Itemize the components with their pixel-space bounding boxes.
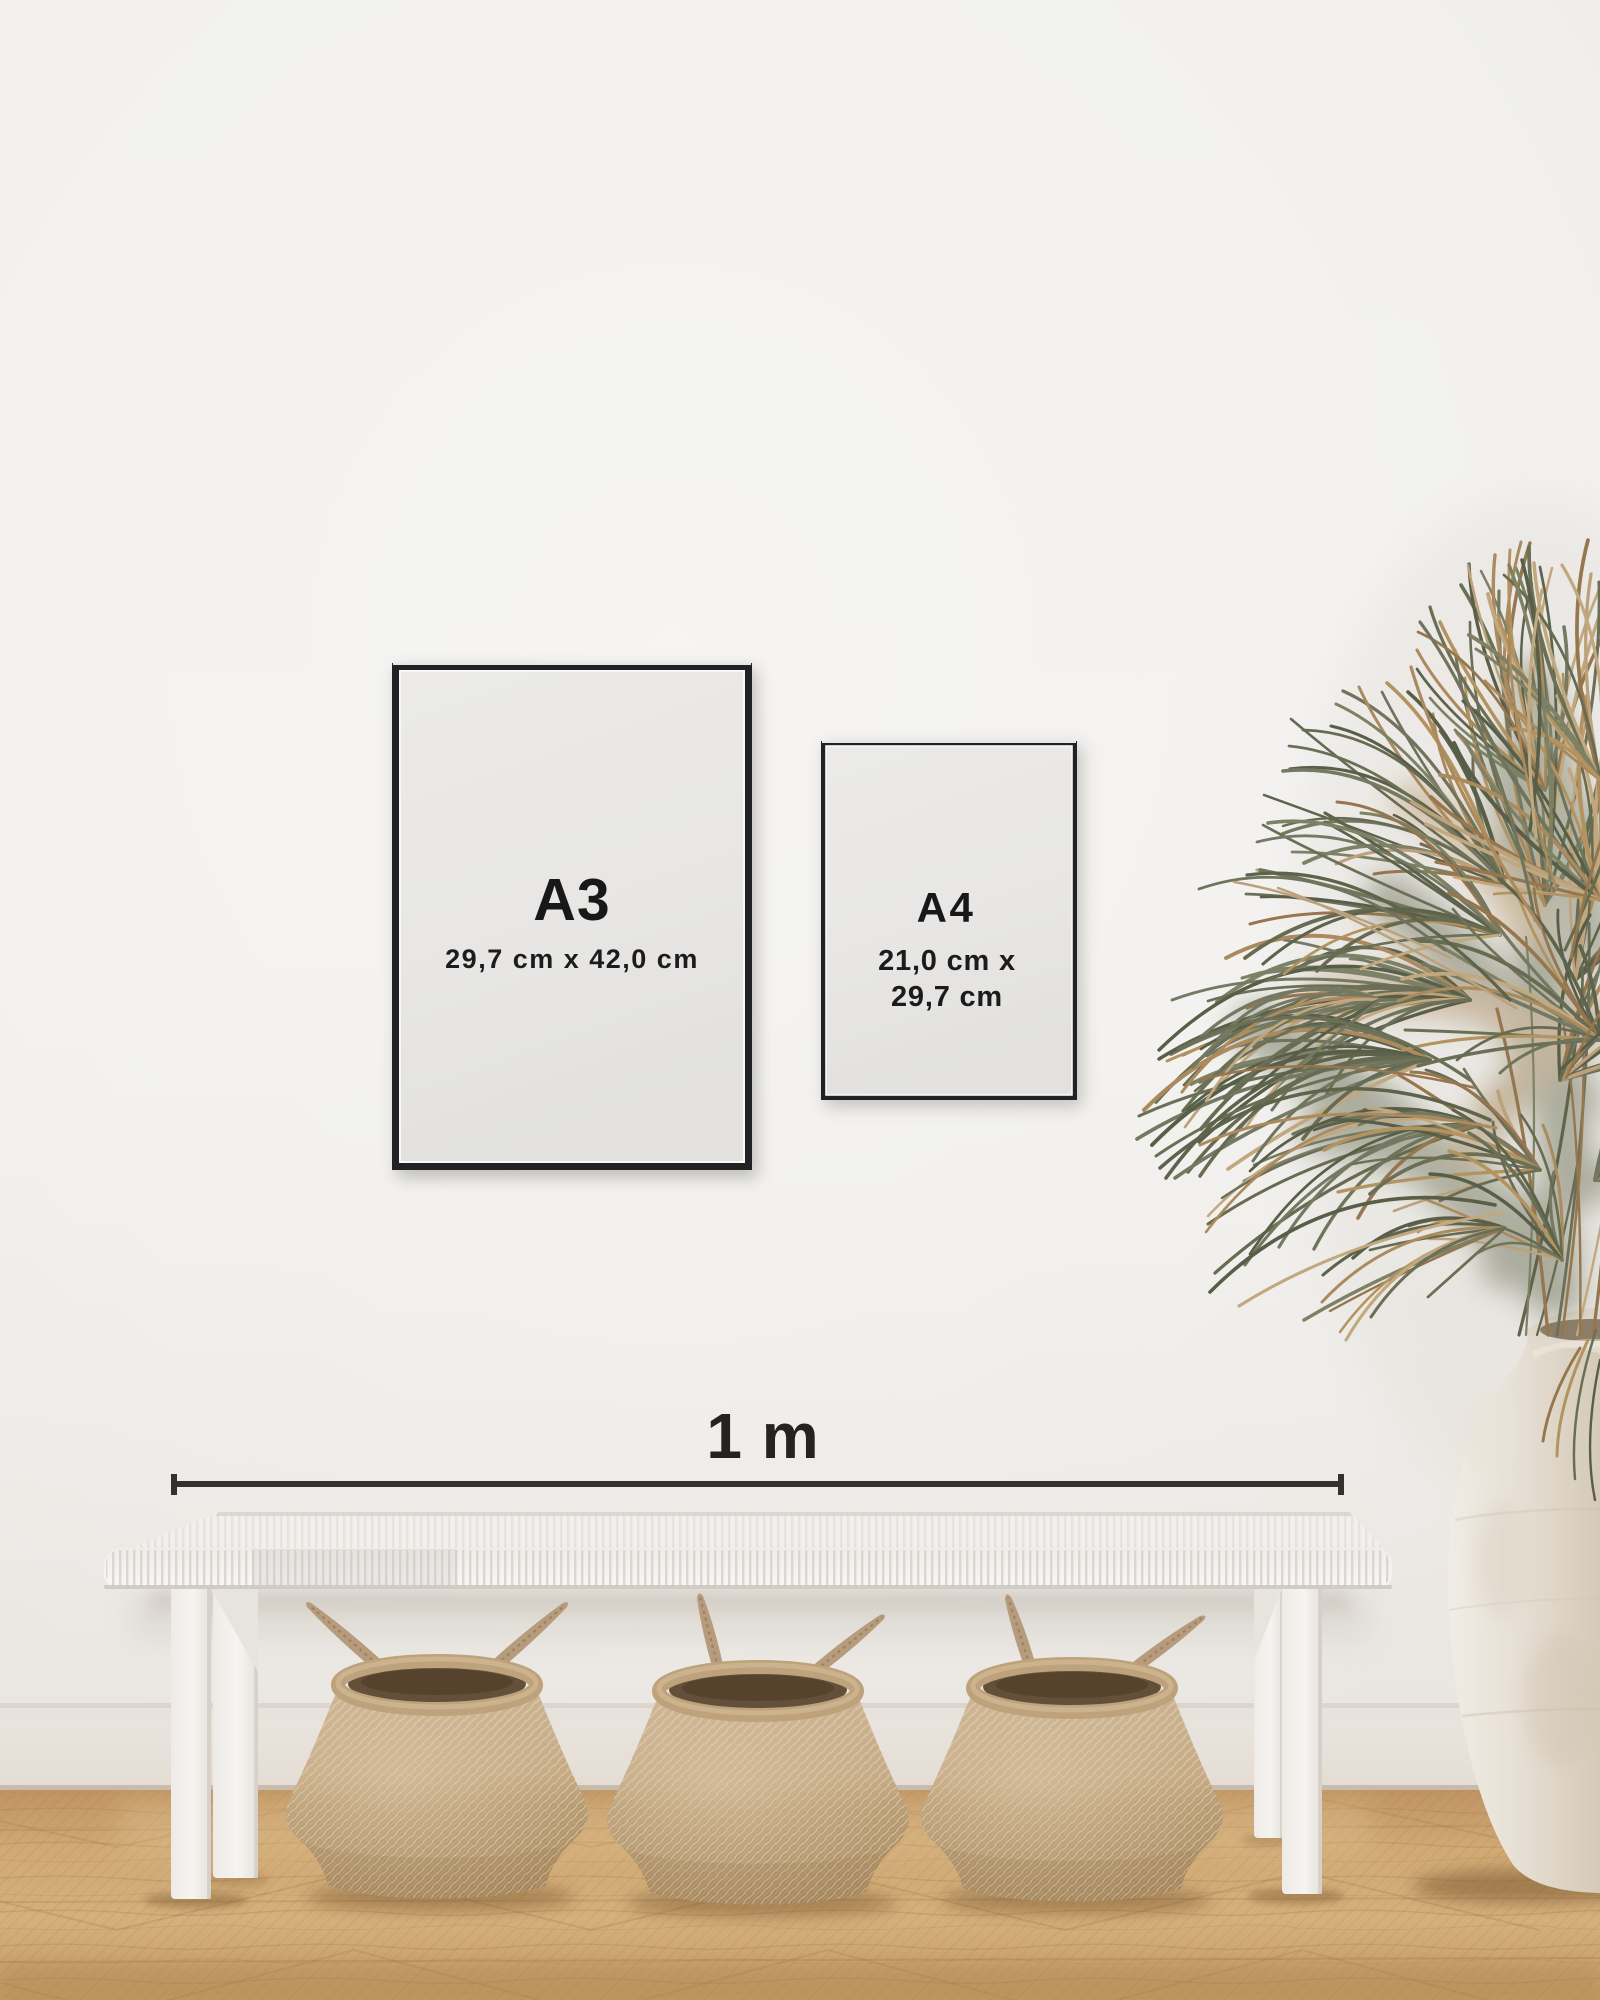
svg-text:1 m: 1 m (706, 1400, 819, 1472)
svg-text:29,7 cm x 42,0 cm: 29,7 cm x 42,0 cm (445, 944, 699, 974)
svg-text:A3: A3 (533, 867, 610, 933)
svg-text:29,7 cm: 29,7 cm (891, 981, 1003, 1013)
svg-text:21,0 cm x: 21,0 cm x (878, 945, 1016, 977)
svg-text:A4: A4 (917, 884, 976, 931)
